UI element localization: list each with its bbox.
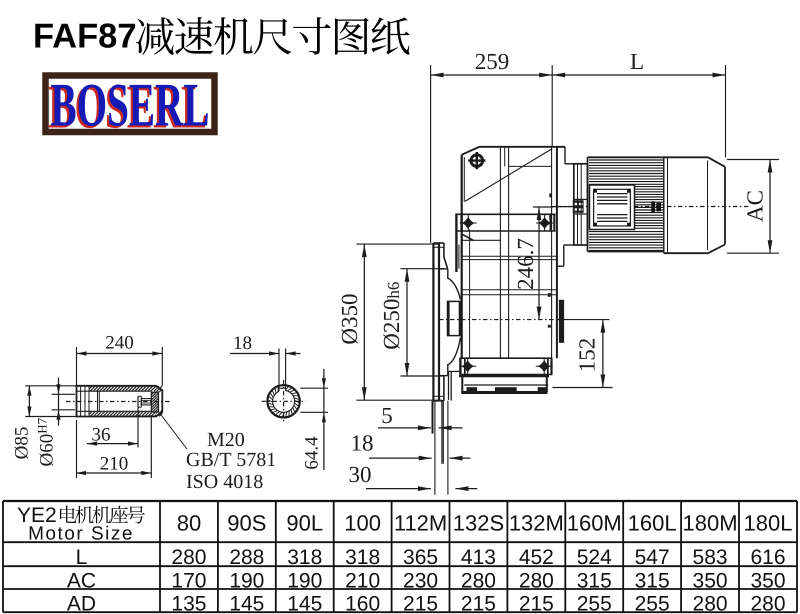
svg-text:280: 280 [171,546,206,569]
svg-text:246.7: 246.7 [513,238,538,290]
svg-text:350: 350 [750,570,785,593]
svg-text:Ø350: Ø350 [337,293,362,344]
svg-text:190: 190 [229,570,264,593]
svg-text:215: 215 [403,593,438,614]
svg-text:318: 318 [345,546,380,569]
svg-text:210: 210 [100,454,129,475]
svg-text:280: 280 [693,593,728,614]
svg-text:452: 452 [519,546,554,569]
svg-text:288: 288 [229,546,264,569]
svg-text:280: 280 [519,570,554,593]
svg-text:280: 280 [461,570,496,593]
svg-text:259: 259 [475,49,510,74]
svg-text:AC: AC [67,570,96,593]
svg-text:36: 36 [92,425,111,446]
svg-text:AC: AC [743,190,768,222]
svg-text:616: 616 [750,546,785,569]
svg-text:90L: 90L [286,511,323,536]
svg-text:5: 5 [381,403,393,428]
svg-text:365: 365 [403,546,438,569]
svg-text:BOSERL: BOSERL [51,72,210,140]
svg-text:240: 240 [105,333,134,354]
svg-text:132M: 132M [509,511,564,536]
svg-text:160L: 160L [628,511,677,536]
svg-text:90S: 90S [227,511,266,536]
svg-text:160: 160 [345,593,380,614]
svg-text:Ø85: Ø85 [12,427,33,460]
svg-text:190: 190 [287,570,322,593]
svg-text:M20: M20 [207,429,245,451]
svg-text:315: 315 [577,570,612,593]
svg-text:FAF87: FAF87 [33,18,137,56]
svg-text:18: 18 [351,431,374,456]
svg-text:18: 18 [233,333,252,354]
svg-text:L: L [630,49,644,74]
svg-text:350: 350 [693,570,728,593]
svg-text:Ø60H7: Ø60H7 [35,417,58,466]
svg-text:AD: AD [67,593,96,614]
svg-text:180L: 180L [744,511,793,536]
svg-text:GB/T 5781: GB/T 5781 [186,449,276,471]
svg-text:145: 145 [287,593,322,614]
svg-text:280: 280 [750,593,785,614]
svg-text:215: 215 [519,593,554,614]
svg-text:80: 80 [177,511,201,536]
svg-text:Ø250h6: Ø250h6 [379,282,404,350]
svg-text:230: 230 [403,570,438,593]
svg-text:524: 524 [577,546,612,569]
svg-text:30: 30 [349,462,372,487]
svg-text:215: 215 [461,593,496,614]
svg-text:255: 255 [635,593,670,614]
svg-text:210: 210 [345,570,380,593]
svg-text:547: 547 [635,546,670,569]
svg-text:135: 135 [171,593,206,614]
svg-text:Motor Size: Motor Size [28,524,134,545]
svg-text:413: 413 [461,546,496,569]
svg-text:100: 100 [344,511,381,536]
svg-text:145: 145 [229,593,264,614]
svg-text:318: 318 [287,546,322,569]
svg-text:583: 583 [693,546,728,569]
svg-text:L: L [76,546,88,569]
svg-text:180M: 180M [683,511,738,536]
svg-text:64.4: 64.4 [302,436,323,470]
svg-text:ISO 4018: ISO 4018 [186,471,263,493]
svg-text:160M: 160M [567,511,622,536]
svg-text:255: 255 [577,593,612,614]
svg-text:112M: 112M [394,511,447,536]
svg-text:152: 152 [575,338,600,373]
svg-text:315: 315 [635,570,670,593]
svg-text:132S: 132S [453,511,504,536]
svg-text:170: 170 [171,570,206,593]
